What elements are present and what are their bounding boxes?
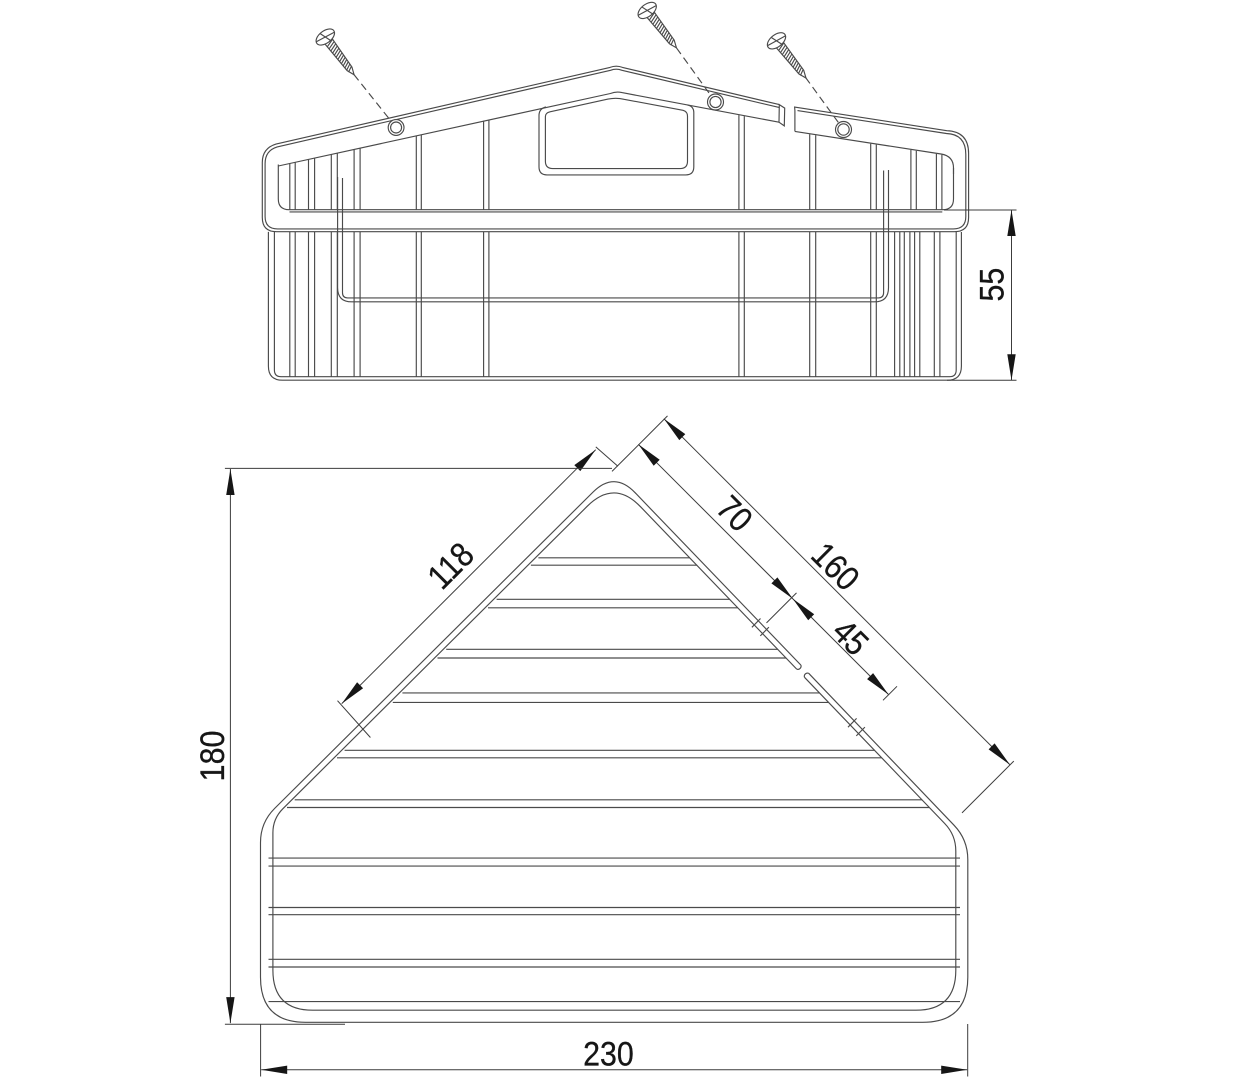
svg-text:230: 230 [583,1035,634,1073]
svg-text:180: 180 [193,731,231,782]
svg-text:55: 55 [973,268,1011,302]
